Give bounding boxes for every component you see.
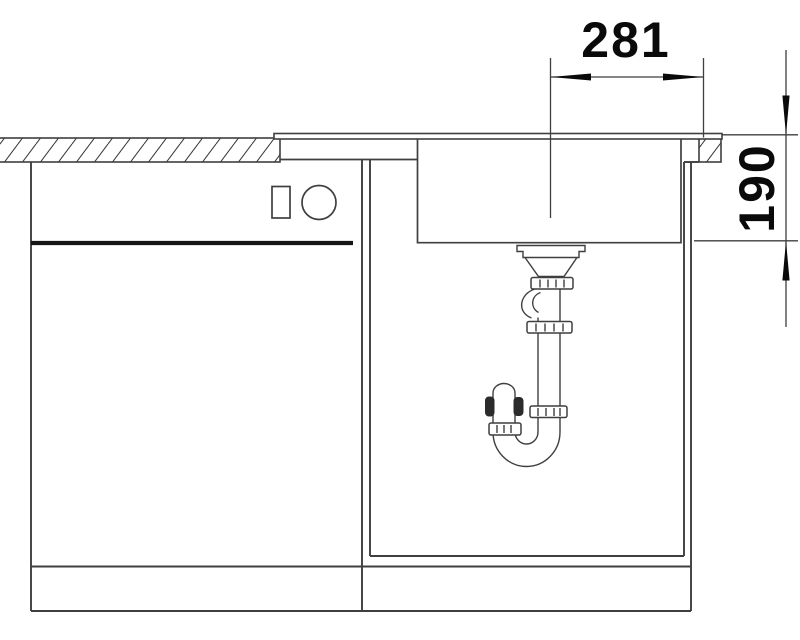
worktop [0, 138, 721, 162]
trap-nut-4 [489, 423, 521, 435]
sink-installation-diagram: 281 190 [0, 0, 800, 640]
strainer-cup [525, 258, 577, 277]
dimension-label-width: 281 [581, 12, 670, 68]
dishwasher-control-knob [302, 186, 336, 220]
drawing-canvas: 281 190 [0, 0, 800, 640]
trap-nut-3 [530, 406, 567, 418]
sink-rim [274, 134, 722, 140]
dishwasher-front [31, 186, 353, 244]
sink-bowl [418, 139, 682, 243]
trap-elbow-inner [533, 293, 541, 313]
trap-ubend-outer [493, 432, 560, 467]
arrow-right-icon [663, 74, 704, 81]
worktop-right-edge-section [699, 139, 721, 163]
dimension-depth: 190 [694, 50, 798, 327]
strainer-flange [517, 246, 585, 258]
worktop-left-section [0, 138, 280, 162]
arrow-down-icon [782, 96, 789, 136]
sink [274, 134, 722, 243]
trap-nut-1 [531, 278, 573, 290]
arrow-up-icon [782, 241, 789, 281]
dimension-label-depth: 190 [729, 143, 785, 232]
trap-outlet-tab-left [486, 397, 495, 416]
trap-nut-2 [527, 322, 572, 334]
arrow-left-icon [551, 74, 592, 81]
dishwasher-control-panel [272, 187, 290, 219]
trap-outlet-tab-right [514, 398, 523, 416]
base-cabinets [31, 160, 699, 611]
drain-trap-assembly [486, 246, 586, 467]
trap-outlet-cap [493, 384, 515, 394]
